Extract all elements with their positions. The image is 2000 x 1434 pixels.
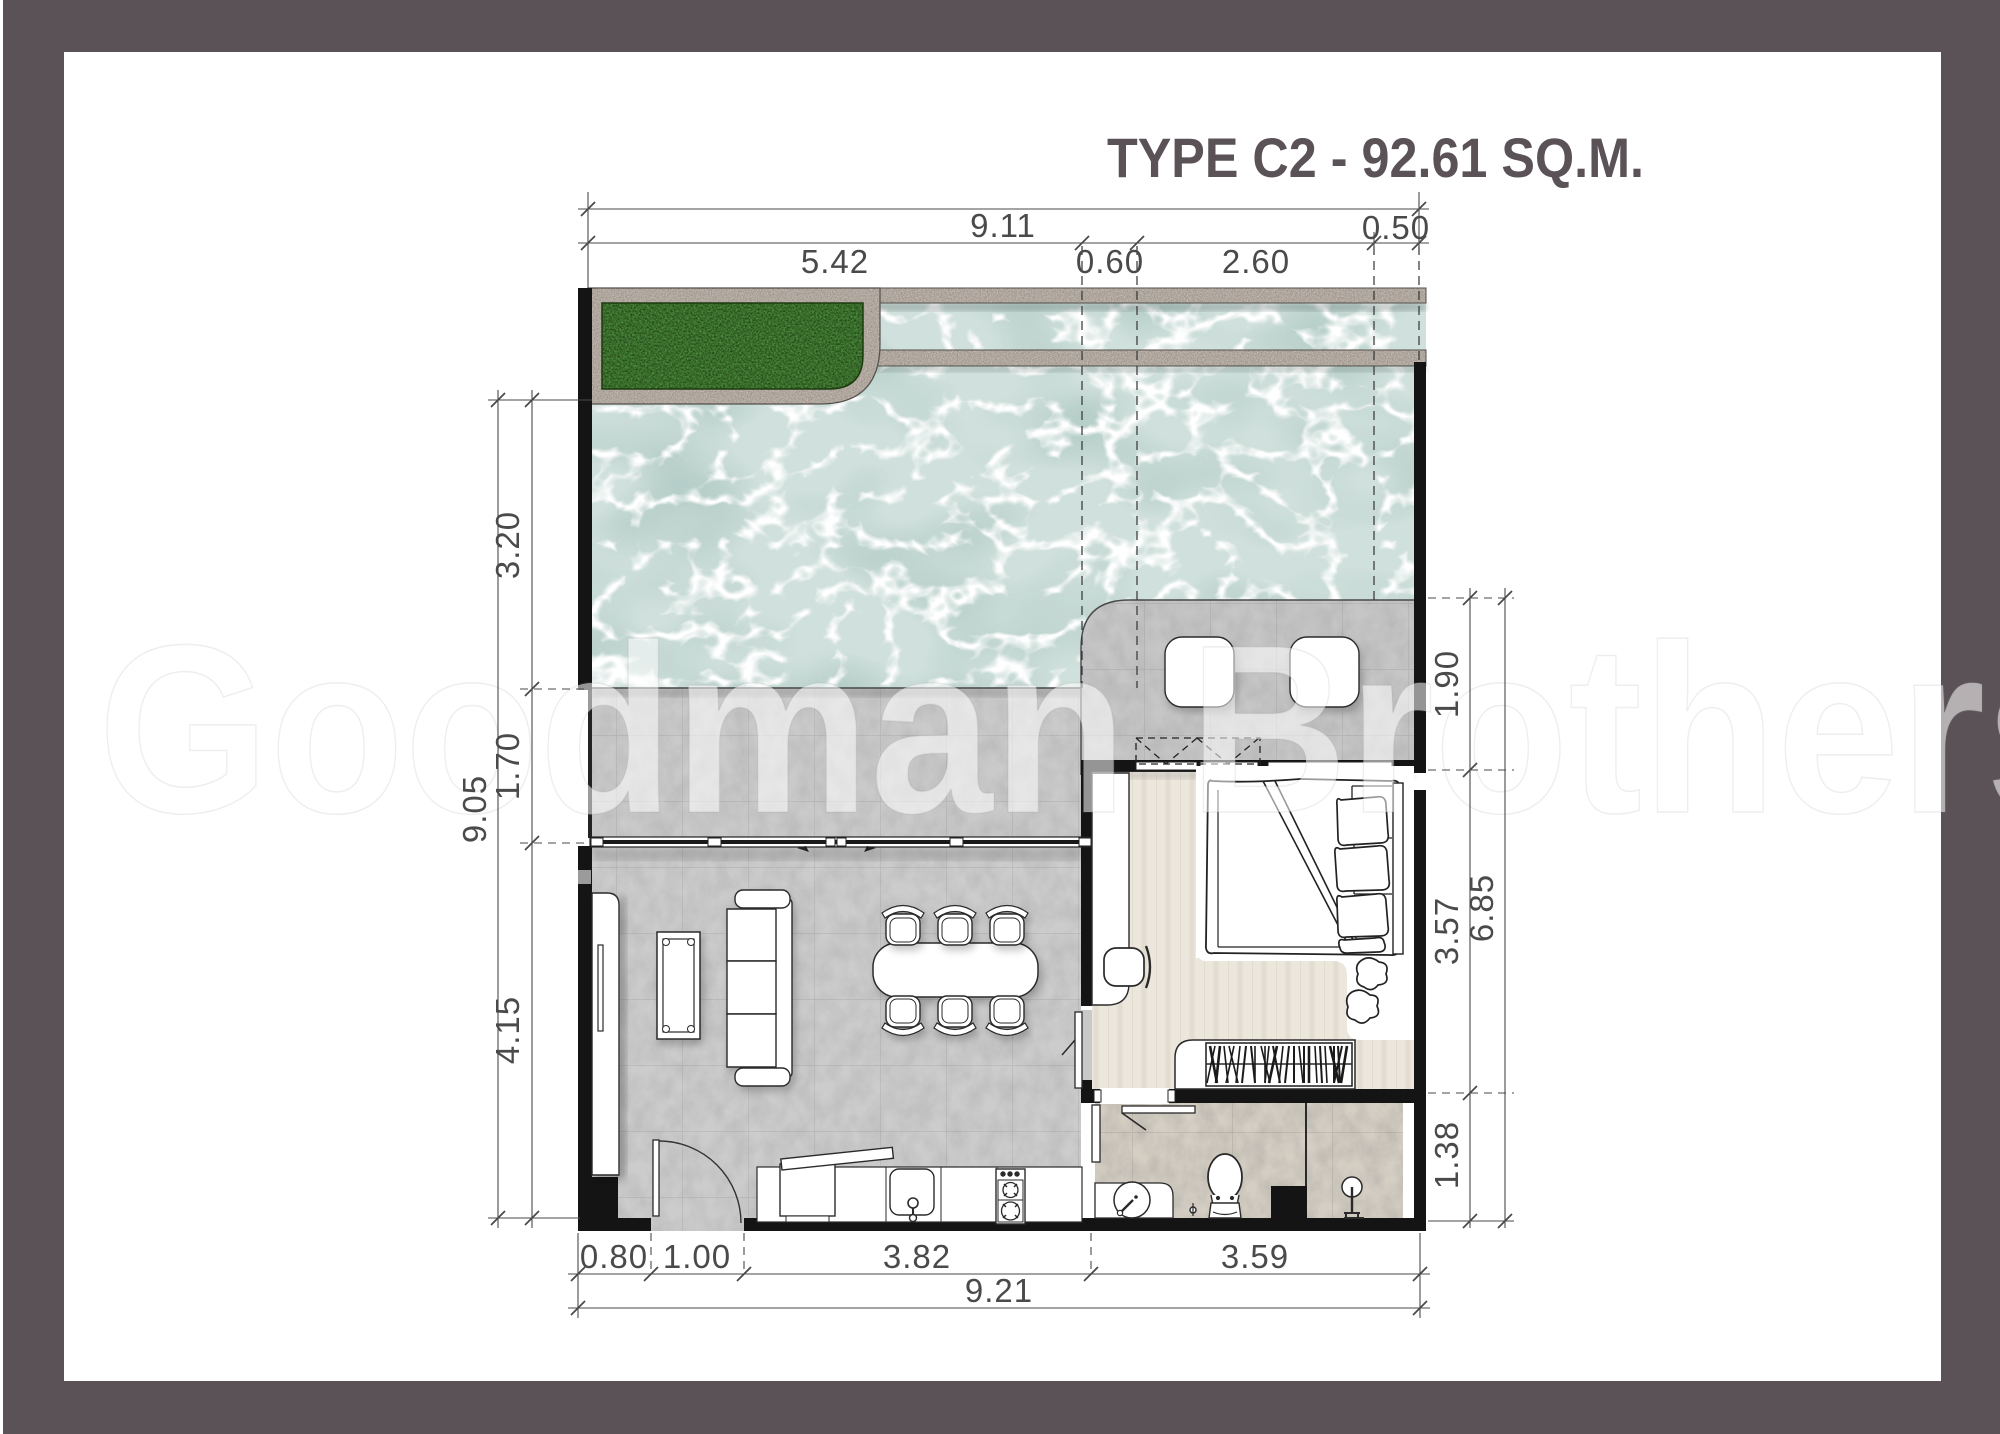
svg-text:2.60: 2.60 <box>1222 243 1290 280</box>
svg-text:9.21: 9.21 <box>965 1272 1033 1309</box>
svg-text:3.57: 3.57 <box>1428 897 1465 965</box>
svg-text:3.59: 3.59 <box>1221 1238 1289 1275</box>
svg-text:1.70: 1.70 <box>489 732 526 800</box>
svg-text:1.38: 1.38 <box>1428 1121 1465 1189</box>
svg-text:Goodman Brothers: Goodman Brothers <box>98 595 2000 863</box>
svg-text:4.15: 4.15 <box>489 996 526 1064</box>
svg-text:3.20: 3.20 <box>489 511 526 579</box>
svg-text:1.00: 1.00 <box>663 1238 731 1275</box>
svg-text:3.82: 3.82 <box>883 1238 951 1275</box>
svg-text:TYPE C2 - 92.61 SQ.M.: TYPE C2 - 92.61 SQ.M. <box>1107 126 1644 189</box>
svg-text:1.90: 1.90 <box>1428 650 1465 718</box>
svg-text:9.11: 9.11 <box>970 207 1036 244</box>
svg-text:9.05: 9.05 <box>456 775 493 843</box>
svg-text:0.80: 0.80 <box>580 1238 648 1275</box>
svg-text:0.60: 0.60 <box>1076 243 1144 280</box>
svg-text:6.85: 6.85 <box>1463 874 1500 942</box>
svg-text:5.42: 5.42 <box>801 243 869 280</box>
svg-text:0.50: 0.50 <box>1362 209 1430 246</box>
